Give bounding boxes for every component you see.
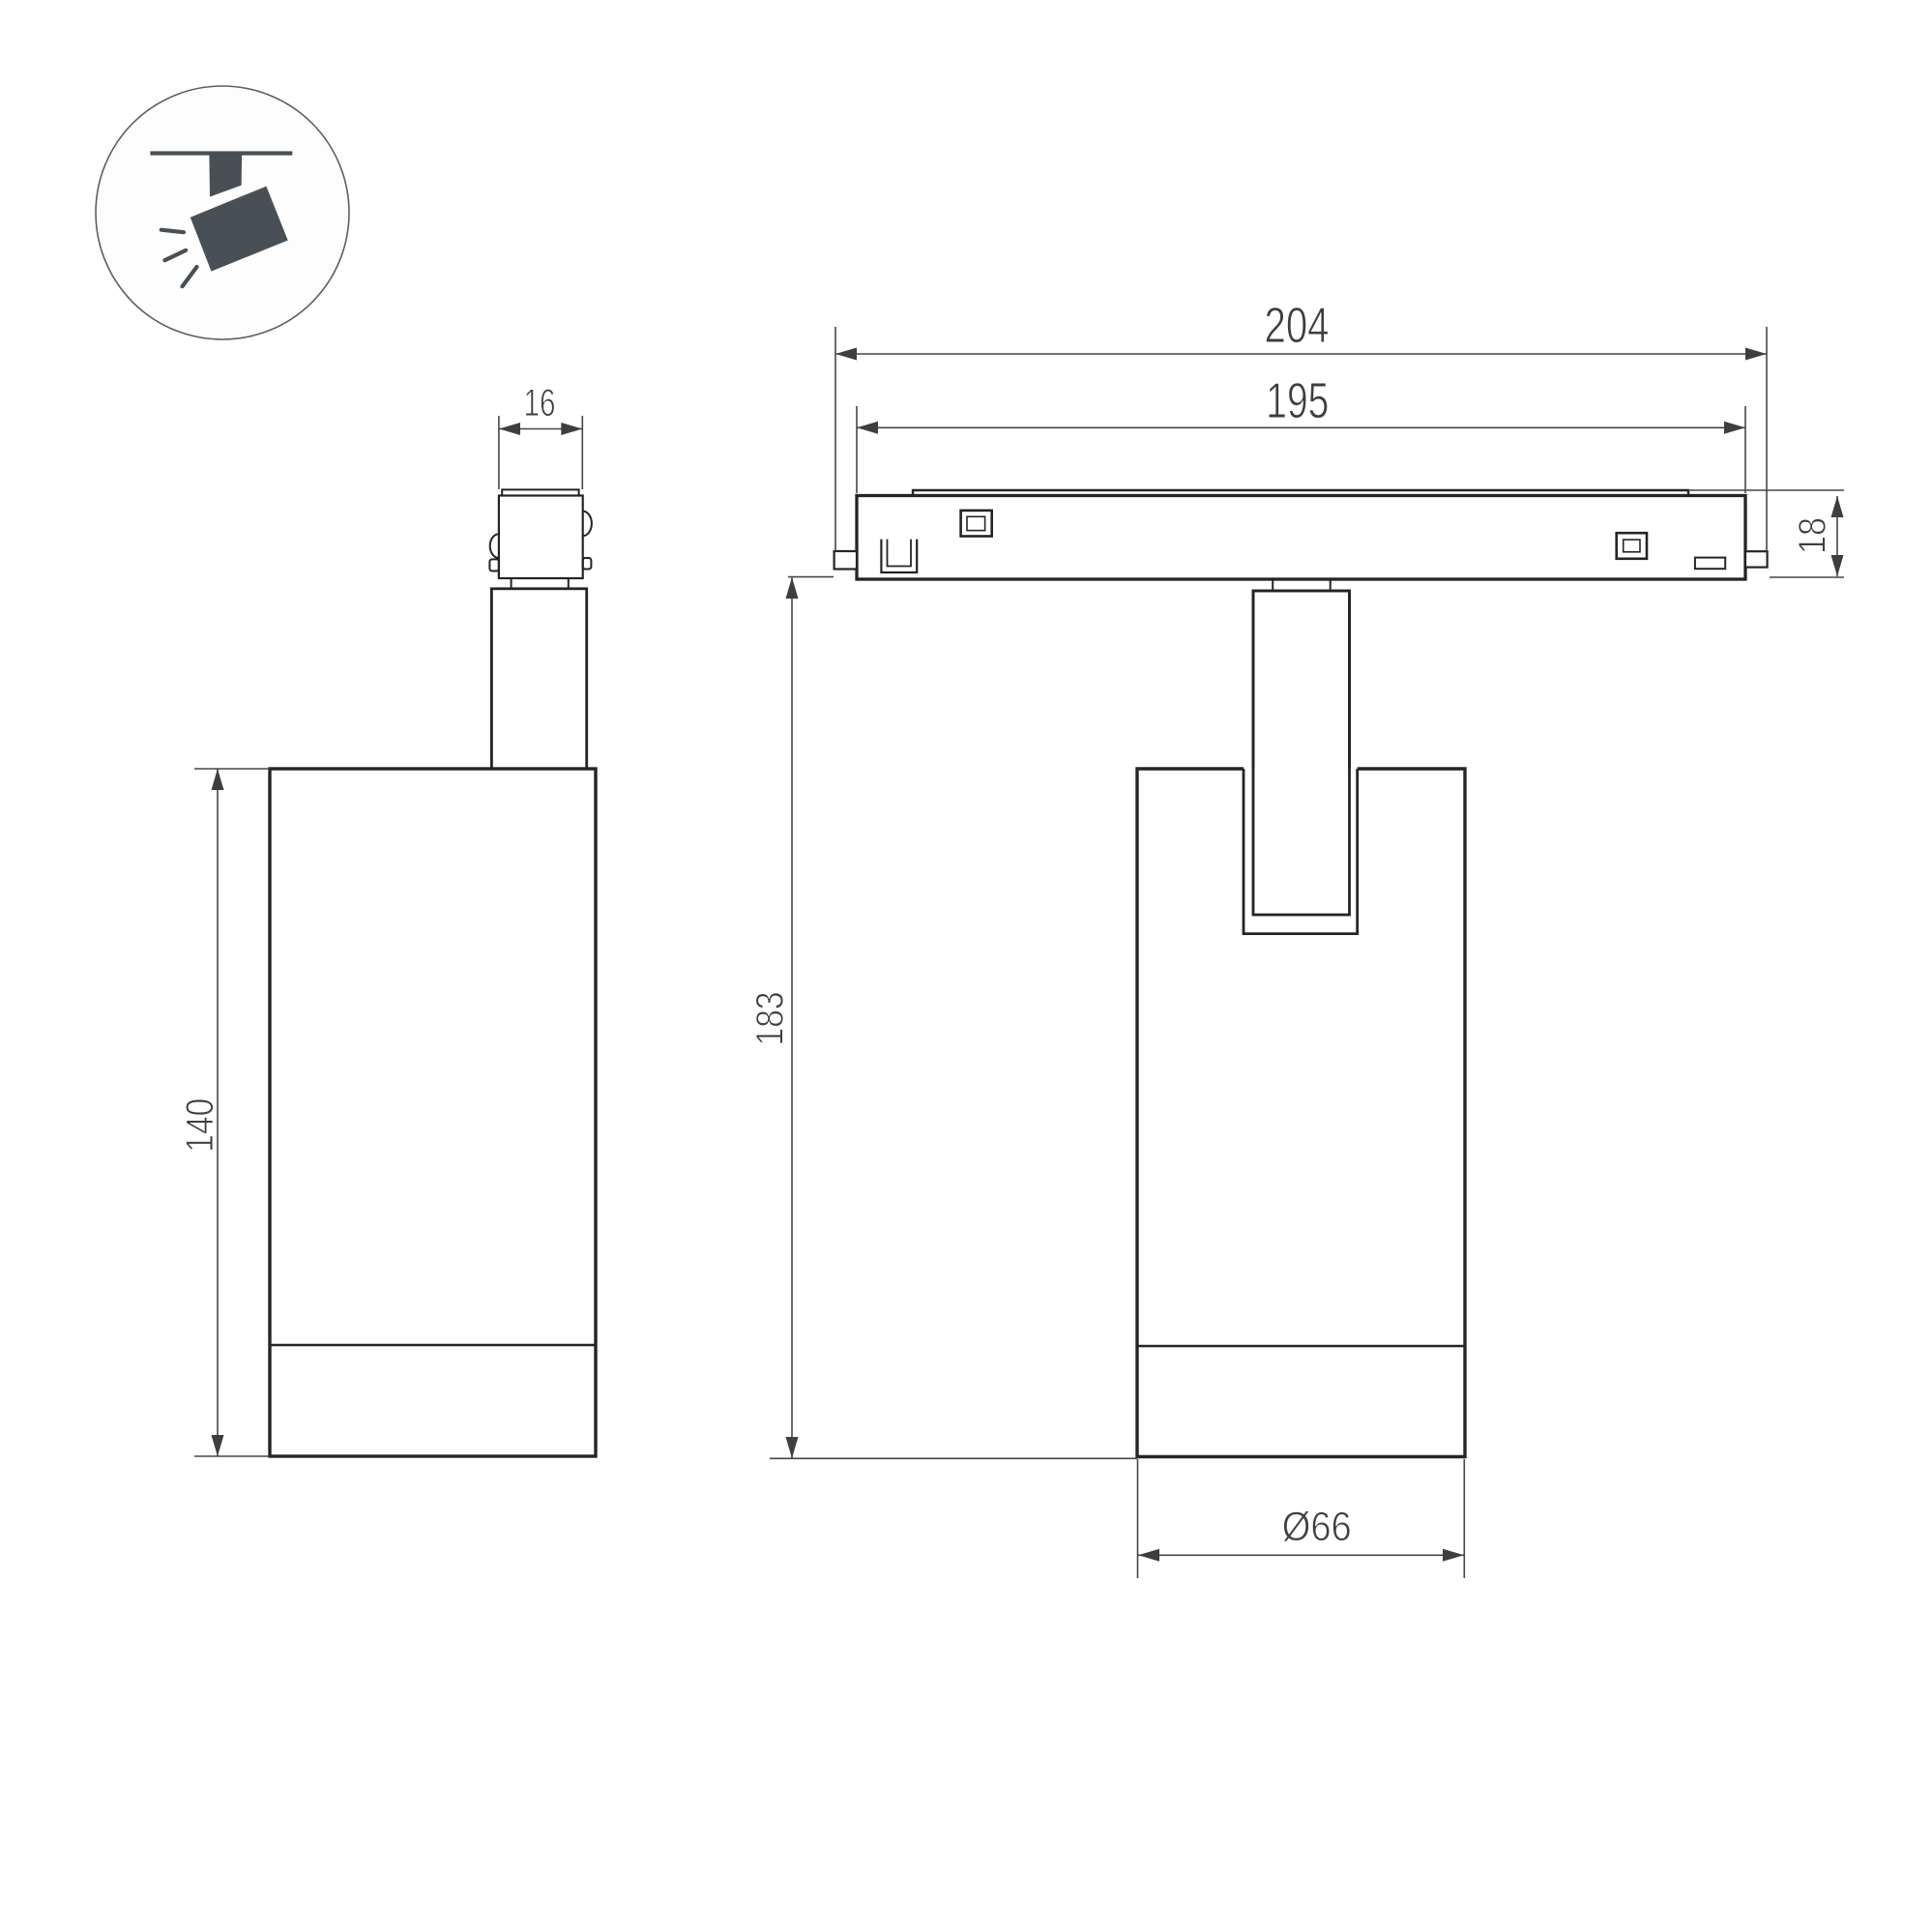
svg-text:16: 16 xyxy=(524,382,556,424)
svg-text:195: 195 xyxy=(1266,373,1329,429)
svg-text:183: 183 xyxy=(748,991,791,1045)
svg-text:140: 140 xyxy=(179,1098,221,1153)
svg-text:18: 18 xyxy=(1791,517,1833,554)
svg-text:Ø66: Ø66 xyxy=(1282,1504,1352,1550)
svg-text:204: 204 xyxy=(1265,298,1330,354)
